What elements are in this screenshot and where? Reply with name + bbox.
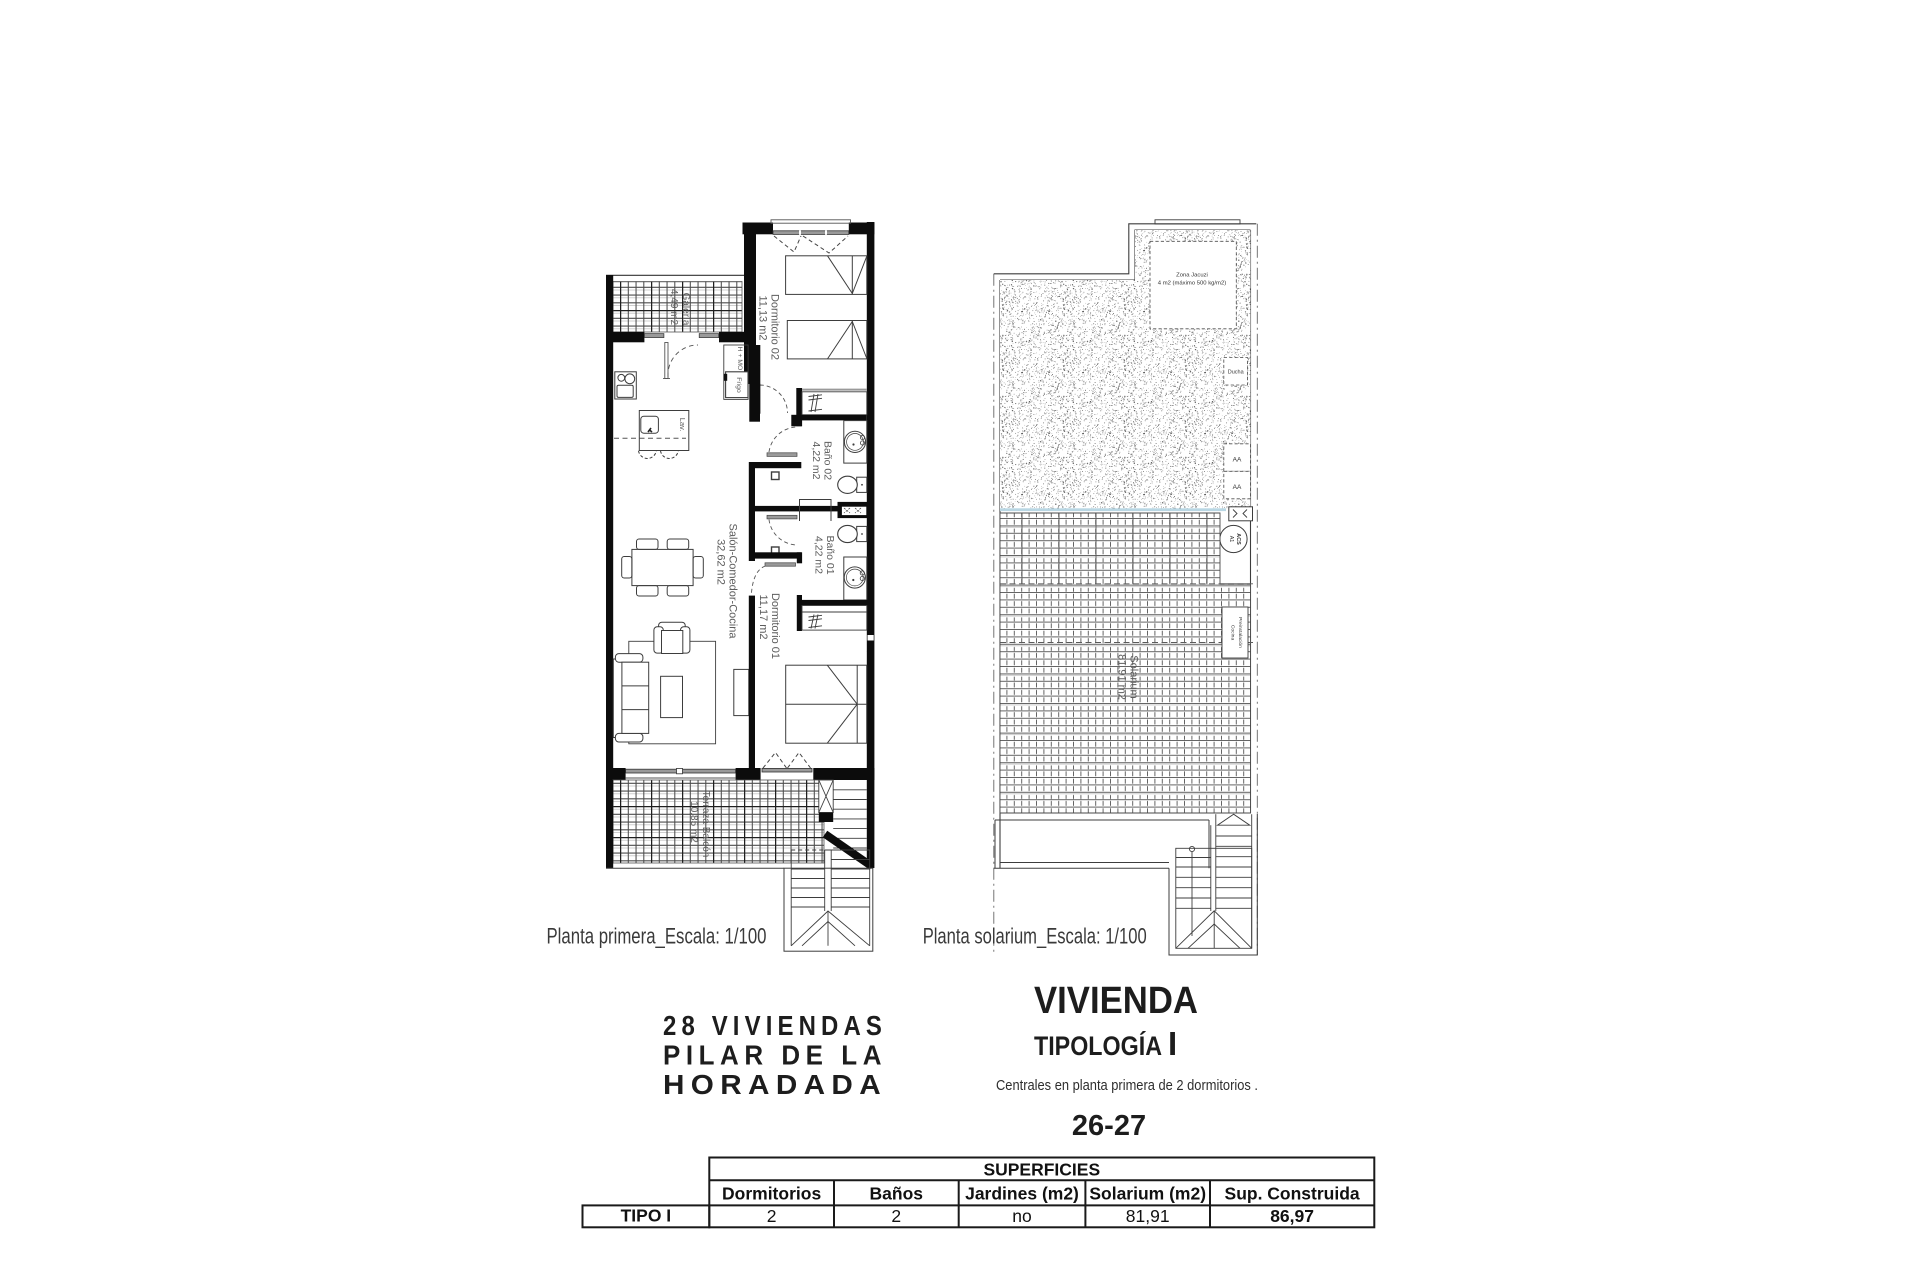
svg-text:PILAR DE LA: PILAR DE LA [663, 1040, 887, 1071]
svg-text:11,13 m2: 11,13 m2 [757, 295, 769, 340]
svg-text:Dormitorios: Dormitorios [722, 1184, 821, 1204]
svg-text:86,97: 86,97 [1270, 1206, 1314, 1226]
svg-text:Solarium: Solarium [1128, 655, 1140, 698]
svg-text:A1: A1 [1228, 536, 1234, 543]
svg-text:4,22 m2: 4,22 m2 [810, 442, 822, 480]
svg-text:I: I [1168, 1025, 1177, 1062]
svg-text:Preinstalación: Preinstalación [1237, 617, 1243, 648]
svg-text:Frigo: Frigo [735, 377, 742, 393]
svg-text:26-27: 26-27 [1072, 1110, 1146, 1142]
svg-text:HORADADA: HORADADA [663, 1069, 887, 1100]
svg-text:SUPERFICIES: SUPERFICIES [983, 1160, 1100, 1180]
svg-text:81,91: 81,91 [1126, 1206, 1170, 1226]
svg-text:Dormitorio 01: Dormitorio 01 [769, 593, 781, 659]
svg-text:Sup. Construida: Sup. Construida [1225, 1184, 1360, 1204]
svg-text:Lav.: Lav. [678, 418, 687, 432]
svg-text:Ducha: Ducha [1228, 370, 1245, 376]
svg-text:2: 2 [891, 1206, 901, 1226]
svg-text:Galería: Galería [680, 293, 691, 326]
svg-text:4,22 m2: 4,22 m2 [813, 536, 825, 574]
svg-text:VIVIENDA: VIVIENDA [1034, 980, 1198, 1022]
svg-text:32,62 m2: 32,62 m2 [715, 539, 727, 585]
svg-text:Jardines (m2): Jardines (m2) [965, 1184, 1079, 1204]
svg-text:TIPO I: TIPO I [621, 1206, 672, 1226]
svg-text:4 m2 (máximo 500 kg/m2): 4 m2 (máximo 500 kg/m2) [1158, 281, 1226, 287]
svg-text:Terraza Balcón: Terraza Balcón [700, 791, 711, 858]
svg-text:Baños: Baños [870, 1184, 924, 1204]
svg-text:28 VIVIENDAS: 28 VIVIENDAS [663, 1010, 887, 1041]
svg-text:Zona Jacuzi: Zona Jacuzi [1176, 273, 1208, 279]
svg-text:AA: AA [1233, 457, 1242, 464]
svg-text:AA: AA [1233, 484, 1242, 491]
svg-text:Centrales en planta primera de: Centrales en planta primera de 2 dormito… [996, 1078, 1258, 1094]
svg-text:Planta primera_Escala: 1/100: Planta primera_Escala: 1/100 [547, 924, 767, 949]
svg-text:81,91 m2: 81,91 m2 [1116, 654, 1128, 700]
svg-text:Dormitorio 02: Dormitorio 02 [769, 294, 781, 360]
svg-text:ACS: ACS [1235, 533, 1241, 545]
svg-text:10,85 m2: 10,85 m2 [688, 801, 699, 843]
svg-text:4,49 m2: 4,49 m2 [668, 289, 679, 326]
svg-text:11,17 m2: 11,17 m2 [757, 594, 769, 639]
svg-text:H + MO: H + MO [736, 347, 743, 371]
svg-text:2: 2 [767, 1206, 777, 1226]
svg-text:Baño 01: Baño 01 [824, 535, 836, 574]
svg-text:TIPOLOGÍA: TIPOLOGÍA [1034, 1030, 1162, 1061]
svg-text:Solarium (m2): Solarium (m2) [1089, 1184, 1206, 1204]
svg-text:Salón-Comedor-Cocina: Salón-Comedor-Cocina [727, 524, 739, 640]
svg-text:Baño 02: Baño 02 [822, 441, 834, 480]
svg-text:Cocina: Cocina [1230, 625, 1236, 641]
svg-text:Planta solarium_Escala: 1/100: Planta solarium_Escala: 1/100 [923, 924, 1147, 949]
svg-text:no: no [1012, 1206, 1031, 1226]
